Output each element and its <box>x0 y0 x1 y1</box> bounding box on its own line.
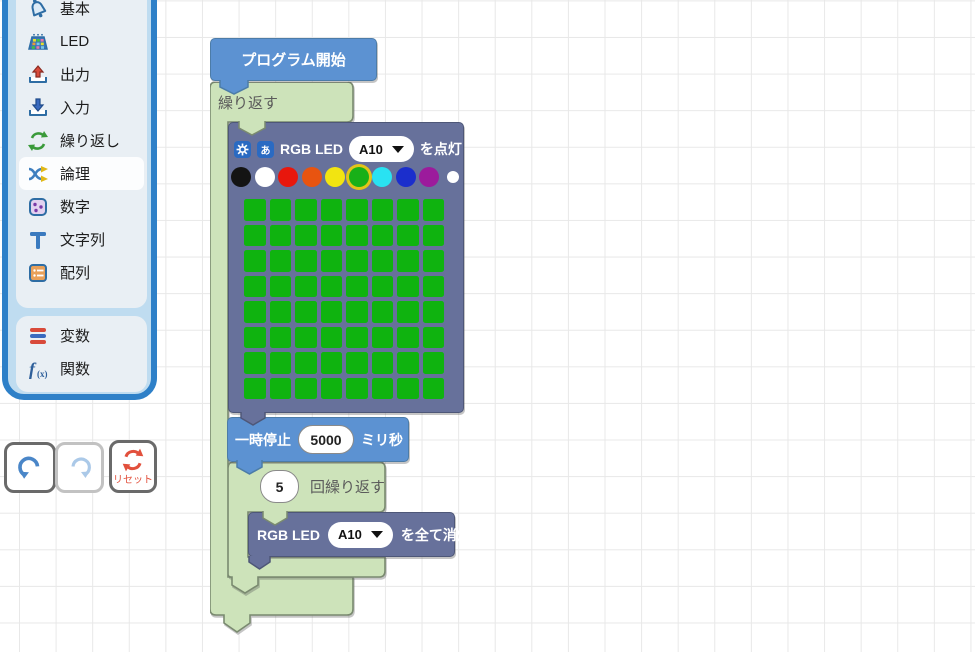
led-cell[interactable] <box>321 301 343 323</box>
led-cell[interactable] <box>295 225 317 247</box>
pause-label: 一時停止 <box>235 430 291 450</box>
led-cell[interactable] <box>295 276 317 298</box>
pause-value-field[interactable]: 5000 <box>298 425 354 454</box>
palette-color-6[interactable] <box>372 167 392 187</box>
led-cell[interactable] <box>397 199 419 221</box>
category-label: 出力 <box>60 64 90 85</box>
led-cell[interactable] <box>372 378 394 400</box>
palette-color-5[interactable] <box>349 167 369 187</box>
connector-tab <box>262 511 288 526</box>
led-cell[interactable] <box>397 327 419 349</box>
port-value: A10 <box>359 142 383 157</box>
redo-icon <box>66 454 94 482</box>
led-cell[interactable] <box>244 250 266 272</box>
category-label: 繰り返し <box>60 130 120 151</box>
redo-button[interactable] <box>55 442 104 493</box>
program-start-label: プログラム開始 <box>241 49 346 70</box>
toolbox-panel: 基本 LED 出力 <box>2 0 157 400</box>
connector-tab <box>240 412 266 426</box>
led-cell[interactable] <box>270 301 292 323</box>
category-label: 文字列 <box>60 229 105 250</box>
led-cell[interactable] <box>397 378 419 400</box>
led-cell[interactable] <box>270 327 292 349</box>
palette-color-7[interactable] <box>396 167 416 187</box>
palette-color-0[interactable] <box>231 167 251 187</box>
led-cell[interactable] <box>423 250 445 272</box>
pause-unit: ミリ秒 <box>361 430 403 450</box>
led-cell[interactable] <box>321 250 343 272</box>
category-label: 配列 <box>60 262 90 283</box>
rgb-led-on-action: を点灯 <box>420 139 462 159</box>
led-cell[interactable] <box>321 276 343 298</box>
led-cell[interactable] <box>295 378 317 400</box>
led-cell[interactable] <box>321 352 343 374</box>
input-icon <box>26 96 50 120</box>
led-cell[interactable] <box>372 276 394 298</box>
led-cell[interactable] <box>270 378 292 400</box>
led-cell[interactable] <box>346 301 368 323</box>
palette-color-1[interactable] <box>255 167 275 187</box>
led-cell[interactable] <box>372 301 394 323</box>
svg-text:(x): (x) <box>37 369 48 379</box>
led-cell[interactable] <box>397 225 419 247</box>
port-dropdown-off[interactable]: A10 <box>328 522 393 548</box>
connector-tab <box>238 121 266 136</box>
led-cell[interactable] <box>295 301 317 323</box>
category-list-extra: 変数 f (x) 関数 <box>16 316 147 392</box>
rgb-led-on-title: RGB LED <box>280 141 343 157</box>
led-cell[interactable] <box>244 276 266 298</box>
led-cell[interactable] <box>423 378 445 400</box>
string-icon <box>26 228 50 252</box>
repeat-n-label: 回繰り返す <box>310 476 385 497</box>
led-cell[interactable] <box>346 378 368 400</box>
connector-tab <box>219 80 249 95</box>
led-cell[interactable] <box>321 327 343 349</box>
led-cell[interactable] <box>397 250 419 272</box>
led-cell[interactable] <box>244 199 266 221</box>
led-cell[interactable] <box>295 199 317 221</box>
category-label: 変数 <box>60 325 90 346</box>
palette-color-9[interactable] <box>443 167 463 187</box>
led-cell[interactable] <box>270 276 292 298</box>
led-cell[interactable] <box>372 327 394 349</box>
led-cell[interactable] <box>321 199 343 221</box>
led-cell[interactable] <box>244 378 266 400</box>
led-cell[interactable] <box>295 352 317 374</box>
sidebar-item-input[interactable]: 入力 <box>16 91 147 124</box>
number-icon <box>26 195 50 219</box>
palette-color-2[interactable] <box>278 167 298 187</box>
category-label: 数字 <box>60 196 90 217</box>
category-list: 基本 LED 出力 <box>16 0 147 308</box>
sidebar-item-function[interactable]: f (x) 関数 <box>16 352 147 385</box>
undo-button[interactable] <box>4 442 56 493</box>
led-cell[interactable] <box>397 301 419 323</box>
led-cell[interactable] <box>423 327 445 349</box>
array-icon <box>26 261 50 285</box>
led-cell[interactable] <box>423 225 445 247</box>
reset-icon <box>120 447 146 473</box>
led-cell[interactable] <box>423 276 445 298</box>
led-cell[interactable] <box>321 225 343 247</box>
sidebar-item-string[interactable]: 文字列 <box>16 223 147 256</box>
led-cell[interactable] <box>423 199 445 221</box>
chevron-down-icon <box>392 146 404 153</box>
undo-icon <box>15 453 45 483</box>
led-grid[interactable] <box>244 199 444 399</box>
block-rgb-led-on[interactable]: あ RGB LED A10 を点灯 <box>228 122 464 413</box>
rgb-led-off-title: RGB LED <box>257 527 320 543</box>
sidebar-item-loop[interactable]: 繰り返し <box>16 124 147 157</box>
connector-tab <box>236 460 263 475</box>
led-cell[interactable] <box>346 250 368 272</box>
sidebar-item-number[interactable]: 数字 <box>16 190 147 223</box>
port-value: A10 <box>338 527 362 542</box>
led-cell[interactable] <box>346 199 368 221</box>
sidebar-item-variable[interactable]: 変数 <box>16 319 147 352</box>
led-cell[interactable] <box>372 352 394 374</box>
rgb-led-off-action: を全て消灯 <box>401 525 471 545</box>
category-label: 入力 <box>60 97 90 118</box>
led-cell[interactable] <box>372 225 394 247</box>
led-cell[interactable] <box>346 276 368 298</box>
sidebar-item-output[interactable]: 出力 <box>16 58 147 91</box>
led-matrix-icon <box>26 30 50 54</box>
chevron-down-icon <box>371 531 383 538</box>
led-cell[interactable] <box>295 327 317 349</box>
kana-help-icon[interactable]: あ <box>257 141 274 158</box>
led-cell[interactable] <box>372 199 394 221</box>
logic-icon <box>26 162 50 186</box>
output-icon <box>26 63 50 87</box>
palette-color-3[interactable] <box>302 167 322 187</box>
connector-tab <box>248 556 271 570</box>
led-cell[interactable] <box>244 301 266 323</box>
repeat-count-value: 5 <box>276 479 284 495</box>
led-cell[interactable] <box>423 301 445 323</box>
reset-label: リセット <box>113 471 153 486</box>
led-cell[interactable] <box>244 327 266 349</box>
repeat-count-field[interactable]: 5 <box>260 470 299 503</box>
reset-button[interactable]: リセット <box>109 440 157 493</box>
loop-icon <box>26 129 50 153</box>
led-cell[interactable] <box>346 352 368 374</box>
led-cell[interactable] <box>270 199 292 221</box>
category-label: 基本 <box>60 0 90 19</box>
category-label: 論理 <box>60 163 90 184</box>
led-cell[interactable] <box>423 352 445 374</box>
led-cell[interactable] <box>244 352 266 374</box>
led-cell[interactable] <box>270 225 292 247</box>
led-cell[interactable] <box>397 276 419 298</box>
led-cell[interactable] <box>270 352 292 374</box>
palette-color-4[interactable] <box>325 167 345 187</box>
sidebar-item-array[interactable]: 配列 <box>16 256 147 289</box>
sidebar-item-basic[interactable]: 基本 <box>16 0 147 25</box>
led-cell[interactable] <box>346 327 368 349</box>
gear-icon[interactable] <box>234 141 251 158</box>
sidebar-item-logic[interactable]: 論理 <box>19 157 144 190</box>
led-cell[interactable] <box>372 250 394 272</box>
led-cell[interactable] <box>321 378 343 400</box>
led-cell[interactable] <box>295 250 317 272</box>
block-program-start[interactable]: プログラム開始 <box>210 38 377 81</box>
svg-text:f: f <box>29 359 37 379</box>
palette-color-8[interactable] <box>419 167 439 187</box>
category-label: LED <box>60 33 89 50</box>
category-label: 関数 <box>60 358 90 379</box>
sidebar-item-led[interactable]: LED <box>16 25 147 58</box>
led-cell[interactable] <box>397 352 419 374</box>
workspace[interactable]: 繰り返す 5 回繰り返す プログラム開始 あ <box>0 0 975 652</box>
port-dropdown-on[interactable]: A10 <box>349 136 414 162</box>
pause-value: 5000 <box>310 432 341 448</box>
led-cell[interactable] <box>244 225 266 247</box>
color-palette[interactable] <box>231 167 463 187</box>
bell-icon <box>26 0 50 21</box>
led-cell[interactable] <box>346 225 368 247</box>
variable-icon <box>26 324 50 348</box>
function-icon: f (x) <box>26 357 50 381</box>
repeat-forever-label: 繰り返す <box>218 92 278 113</box>
led-cell[interactable] <box>270 250 292 272</box>
